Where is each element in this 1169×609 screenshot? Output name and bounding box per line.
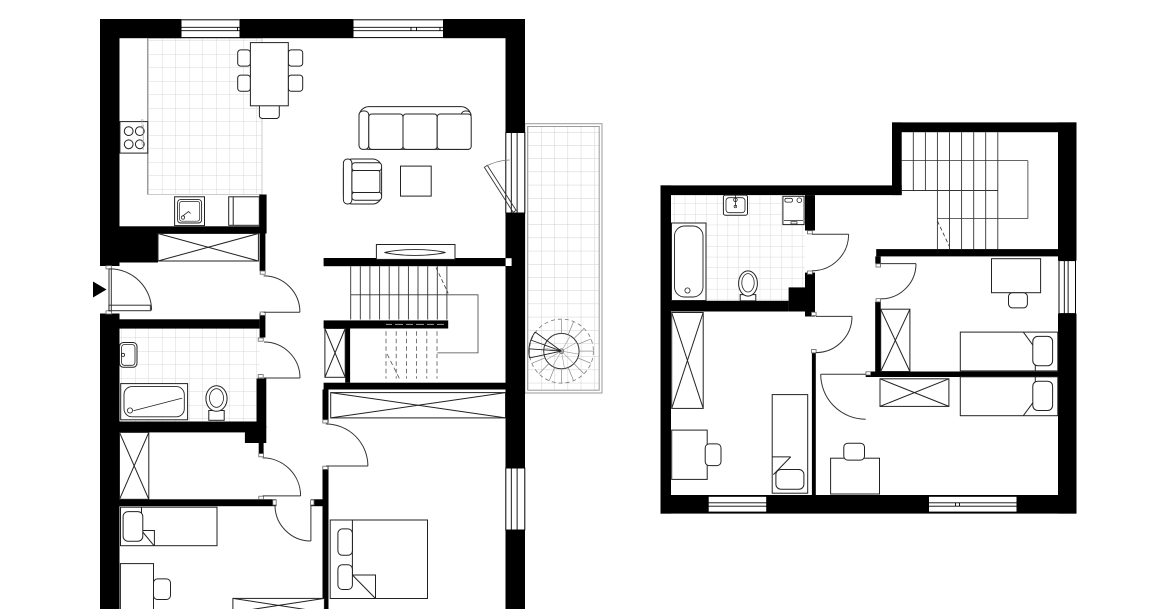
svg-text:60.60: 60.60 [140,119,145,130]
svg-text:60: 60 [140,140,145,145]
